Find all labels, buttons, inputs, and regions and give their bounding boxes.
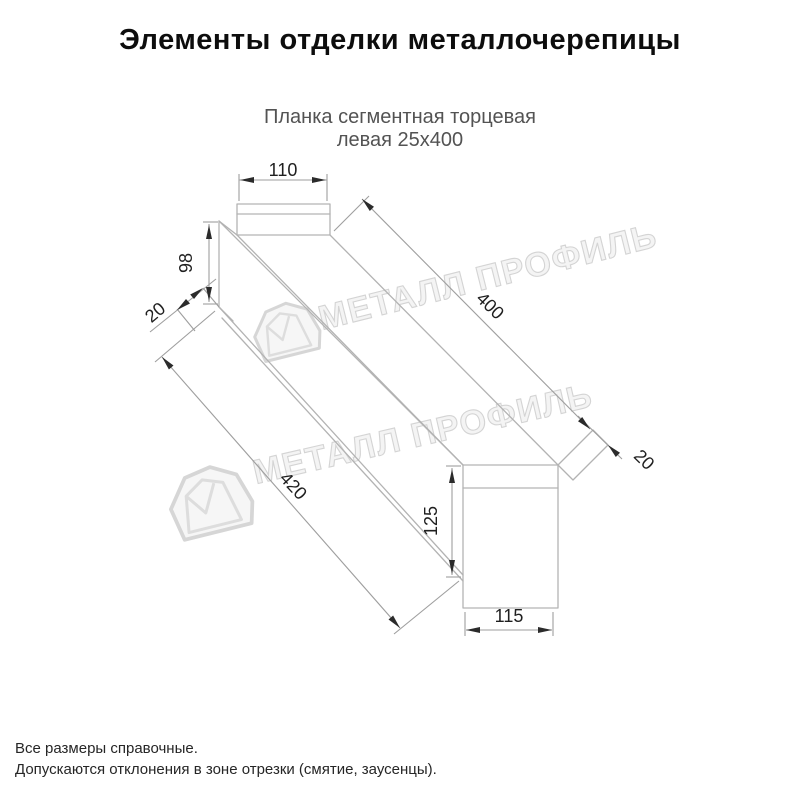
footnote-line2: Допускаются отклонения в зоне отрезки (с…: [15, 759, 785, 780]
watermark-upper: МЕТАЛЛ ПРОФИЛЬ: [249, 217, 662, 363]
footnotes: Все размеры справочные. Допускаются откл…: [15, 738, 785, 780]
dim-left-hem: 20: [141, 298, 169, 326]
strip-outer-edge: [219, 221, 463, 465]
dim-end-face-width: 115: [495, 606, 524, 626]
dim-left-end-height: 98: [176, 253, 196, 273]
watermark-text: МЕТАЛЛ ПРОФИЛЬ: [315, 217, 661, 338]
watermark-lower: МЕТАЛЛ ПРОФИЛЬ: [163, 377, 596, 542]
flange-top-face: [237, 204, 330, 235]
watermark-text: МЕТАЛЛ ПРОФИЛЬ: [249, 377, 596, 492]
dim-right-hem: 20: [630, 446, 658, 474]
dim-flange-width: 110: [269, 160, 298, 180]
end-face: [463, 465, 558, 608]
technical-drawing: МЕТАЛЛ ПРОФИЛЬ МЕТАЛЛ ПРОФИЛЬ: [0, 0, 800, 800]
metal-profil-house-logo: [163, 459, 257, 541]
footnote-line1: Все размеры справочные.: [15, 738, 785, 759]
dim-end-face-height: 125: [421, 506, 441, 536]
